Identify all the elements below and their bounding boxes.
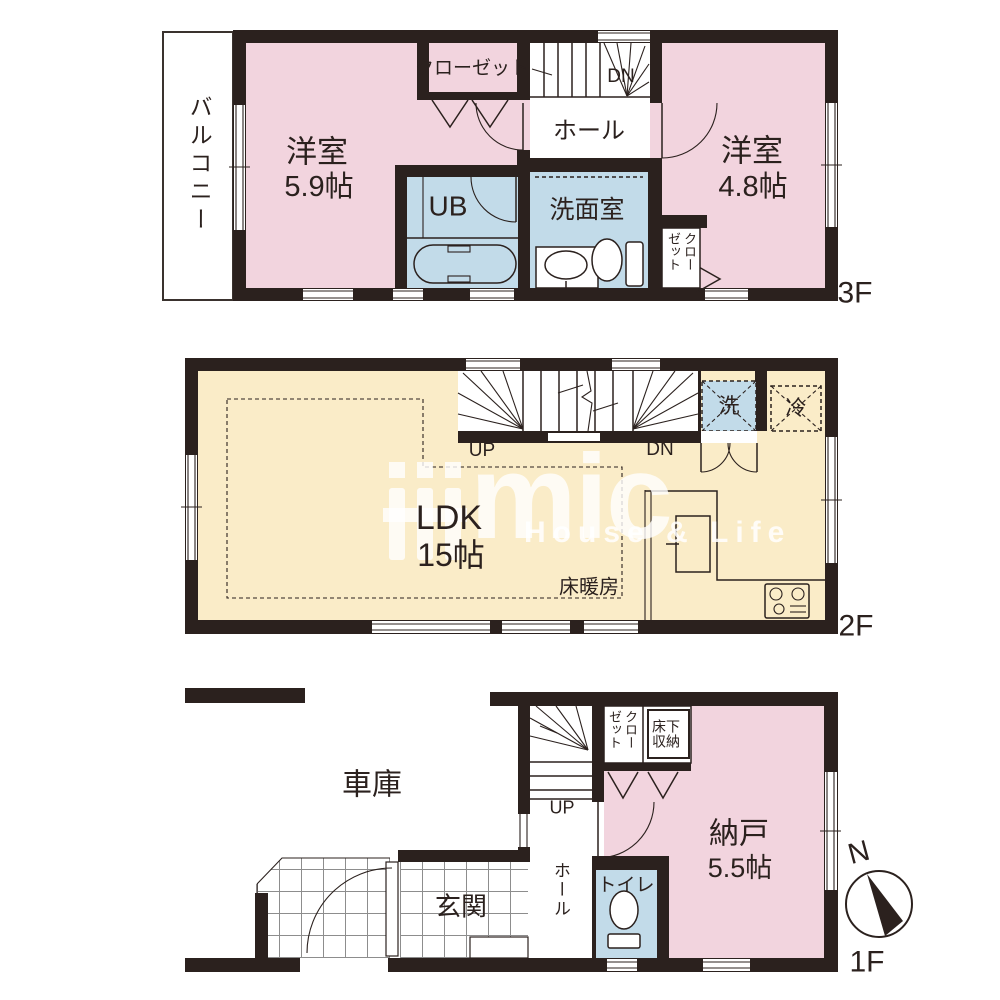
stairs-up-2f-label: UP [469,441,495,461]
toilet-label: トイレ [597,876,654,896]
stairs-dn-3f-label: DN [607,67,634,87]
floor-heating-label: 床暖房 [559,578,619,599]
underfloor-storage-label: 床下収納 [652,719,684,748]
floorplan-page: mic House & Life バルコニー クローゼット DN ホール 洋室 … [0,0,1000,1000]
floor-1f-label: 1F [849,946,884,978]
floor-2f-label: 2F [838,610,873,642]
balcony-label: バルコニー [187,95,211,235]
hall-3f-label: ホール [553,118,625,143]
watermark-tagline: House & Life [524,516,791,550]
ldk-size-label: 15帖 [417,539,485,573]
storage-name-label: 納戸 [709,818,769,850]
floor-1f [185,688,912,972]
garage-label: 車庫 [342,769,402,801]
toilet-fixture [608,891,640,948]
hall-1f-label: ホール [551,862,569,919]
closet-1f-label: クローゼット [606,710,638,758]
room-5-9-name: 洋室 [286,137,348,170]
unit-bath-label: UB [429,191,468,220]
closet-3f-side-label: クローゼット [665,232,697,282]
storage-size-label: 5.5帖 [708,854,773,882]
laundry-label: 洗 [719,396,740,418]
fridge-label: 冷 [786,398,807,420]
compass-icon [846,871,912,937]
washroom-label: 洗面室 [549,197,624,223]
room-4-8-size: 4.8帖 [718,172,787,202]
ldk-name-label: LDK [416,501,482,537]
closet-3f-label: クローゼット [415,59,529,79]
floor-3f-label: 3F [837,277,872,309]
room-4-8-name: 洋室 [721,136,783,169]
room-5-9-size: 5.9帖 [284,172,353,202]
stairs-dn-2f-label: DN [646,440,673,460]
stairs-up-1f-label: UP [549,799,574,818]
entrance-label: 玄関 [435,893,487,920]
